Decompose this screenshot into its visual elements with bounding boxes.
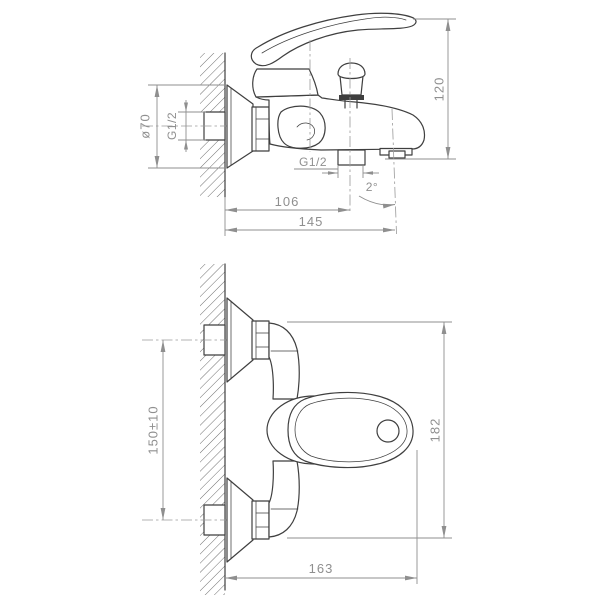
faucet-body-side (256, 95, 425, 150)
lever-handle-side (251, 13, 416, 65)
wall-section-side (200, 53, 225, 197)
side-view: ø70 G1/2 120 G1/2 2° (138, 13, 456, 236)
aerator (380, 149, 412, 159)
dim-outlet-thread: G1/2 (299, 155, 327, 169)
dim-escutcheon-diameter: ø70 (138, 113, 153, 138)
dim-wall-to-spout-145: 145 (299, 214, 324, 229)
dim-wall-to-outlet-106: 106 (275, 194, 300, 209)
wall-hatch (200, 264, 225, 595)
dim-height-120: 120 (432, 77, 447, 102)
handle-base-side (253, 69, 318, 97)
wall-hatch (200, 140, 225, 197)
dim-wall-thread: G1/2 (165, 112, 179, 140)
plan-view: 150±10 182 163 (142, 264, 452, 595)
hex-nut-side (252, 107, 269, 151)
body-tube-top (269, 323, 299, 399)
dim-hole-spacing-150: 150±10 (146, 405, 161, 454)
hex-nut-plan-bottom (252, 501, 269, 539)
hex-nut-plan-top (252, 321, 269, 359)
wall-hatch (200, 53, 225, 112)
lever-handle-plan (288, 392, 413, 467)
knob-flange (339, 95, 364, 100)
body-tube-bottom (269, 461, 299, 537)
angle-arc (359, 196, 395, 205)
technical-drawing-page: ø70 G1/2 120 G1/2 2° (0, 0, 600, 600)
dim-wall-to-handle-163: 163 (309, 561, 334, 576)
shower-outlet-connector (338, 150, 365, 165)
wall-section-plan (200, 264, 225, 595)
technical-drawing-canvas: ø70 G1/2 120 G1/2 2° (0, 0, 600, 600)
dim-spout-angle: 2° (366, 180, 378, 194)
dim-overall-span-182: 182 (428, 418, 443, 443)
